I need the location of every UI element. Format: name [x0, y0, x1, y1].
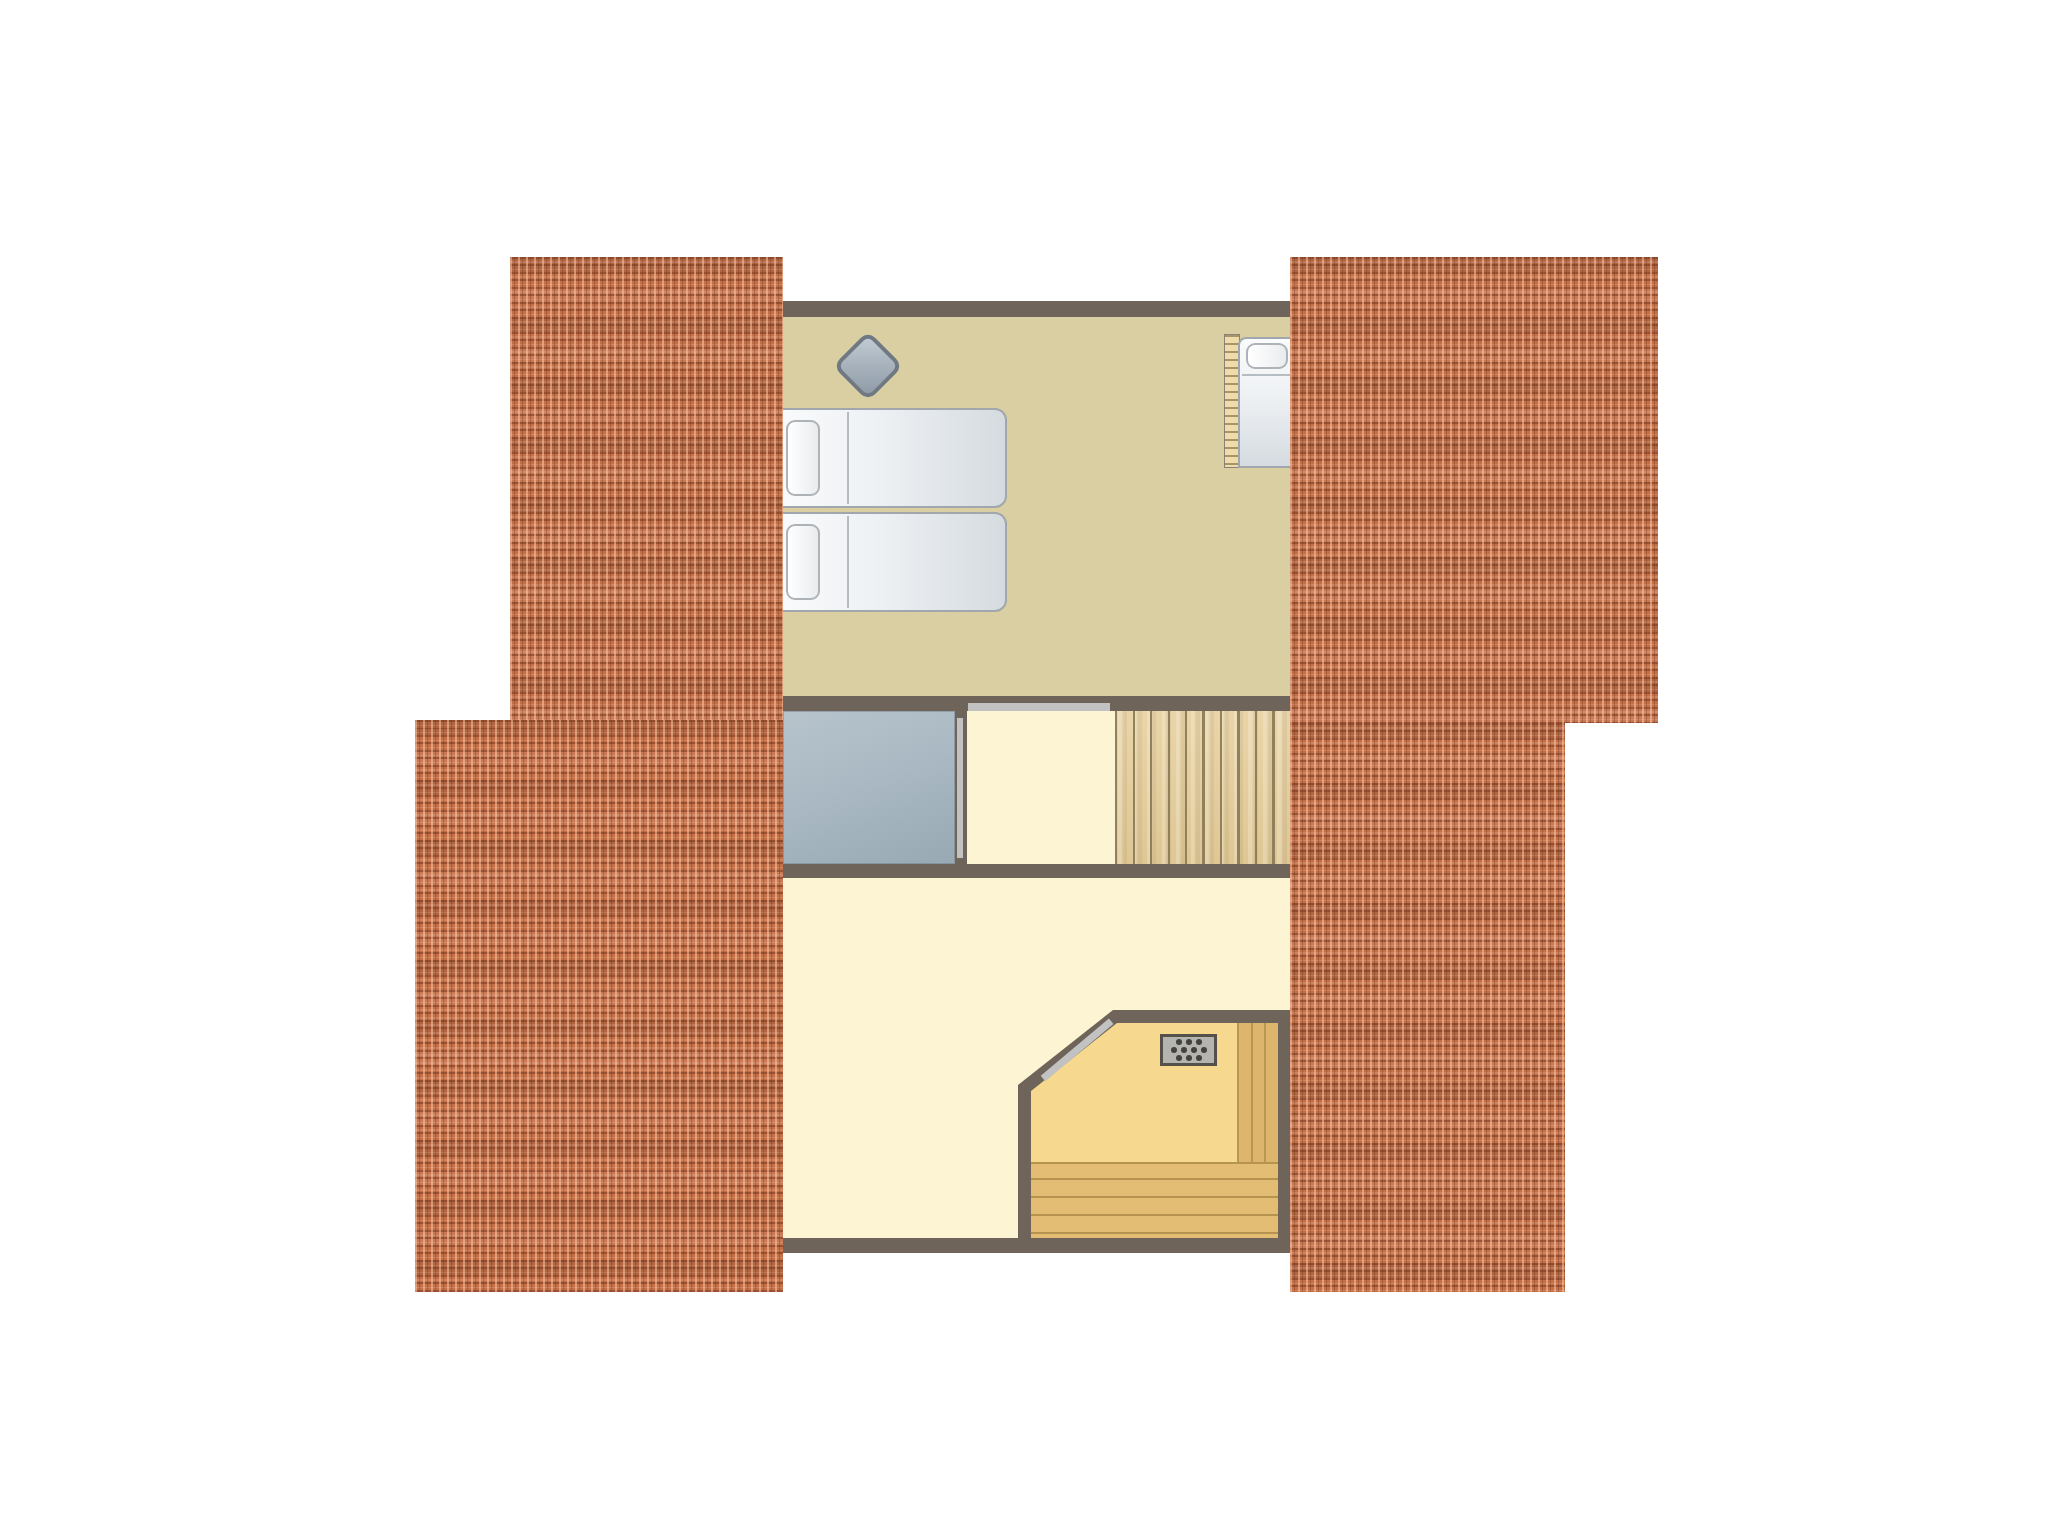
double-bed — [770, 408, 1007, 612]
heater-dot-row — [1171, 1047, 1207, 1053]
floor-plan-canvas — [0, 0, 2048, 1536]
blanket-fold-lower — [847, 516, 849, 608]
roof-right-top — [1290, 257, 1658, 723]
storage-void — [783, 711, 955, 864]
pillow-lower — [786, 524, 820, 600]
bedroom-top-wall — [783, 301, 1290, 317]
blanket-fold-upper — [847, 412, 849, 504]
pillow-single — [1246, 343, 1288, 369]
roof-left-bottom — [415, 720, 783, 1292]
blanket-fold-single — [1242, 374, 1296, 376]
staircase — [1115, 711, 1290, 864]
bedroom-door — [968, 703, 1110, 711]
heater-dot-row — [1176, 1055, 1202, 1061]
pillow-upper — [786, 420, 820, 496]
sauna-bench — [1031, 1162, 1278, 1238]
roof-left-top — [510, 257, 783, 720]
storage-sliding-door — [957, 718, 963, 858]
heater-dot-row — [1176, 1039, 1202, 1045]
sauna-heater-icon — [1160, 1034, 1217, 1066]
roof-right-bottom — [1290, 723, 1565, 1292]
landing-lowerroom-wall — [783, 864, 1290, 878]
landing-floor — [967, 711, 1115, 864]
